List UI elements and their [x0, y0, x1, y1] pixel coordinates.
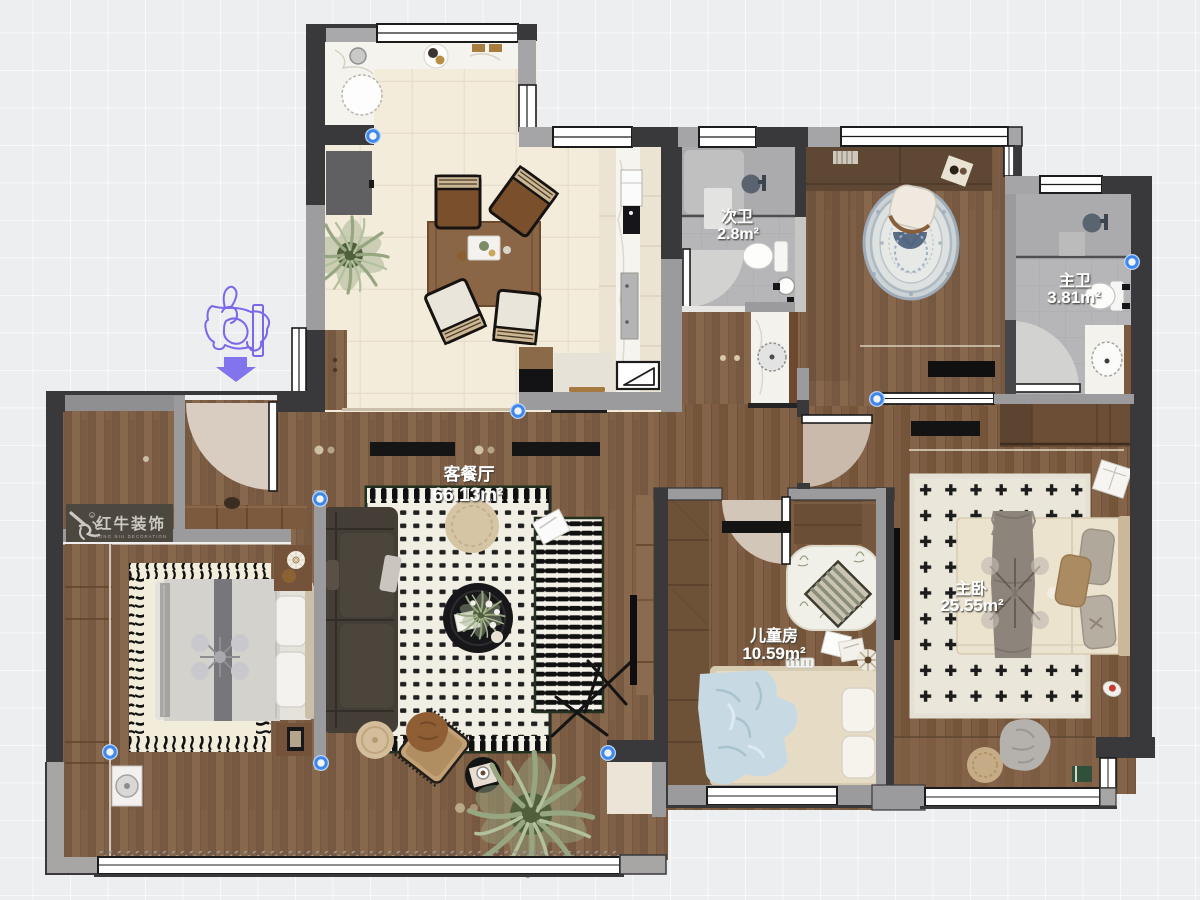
svg-text:2.8m²: 2.8m² [717, 226, 759, 243]
svg-text:HONG NIU DECORATION: HONG NIU DECORATION [95, 534, 168, 539]
svg-text:3.81m²: 3.81m² [1047, 288, 1101, 307]
svg-text:25.55m²: 25.55m² [940, 596, 1004, 615]
svg-text:66.13m²: 66.13m² [433, 485, 504, 506]
svg-text:红牛装饰: 红牛装饰 [96, 514, 166, 533]
svg-text:10.59m²: 10.59m² [742, 644, 806, 663]
svg-text:儿童房: 儿童房 [749, 626, 798, 645]
svg-text:次卫: 次卫 [721, 207, 753, 226]
svg-text:客餐厅: 客餐厅 [443, 464, 495, 484]
